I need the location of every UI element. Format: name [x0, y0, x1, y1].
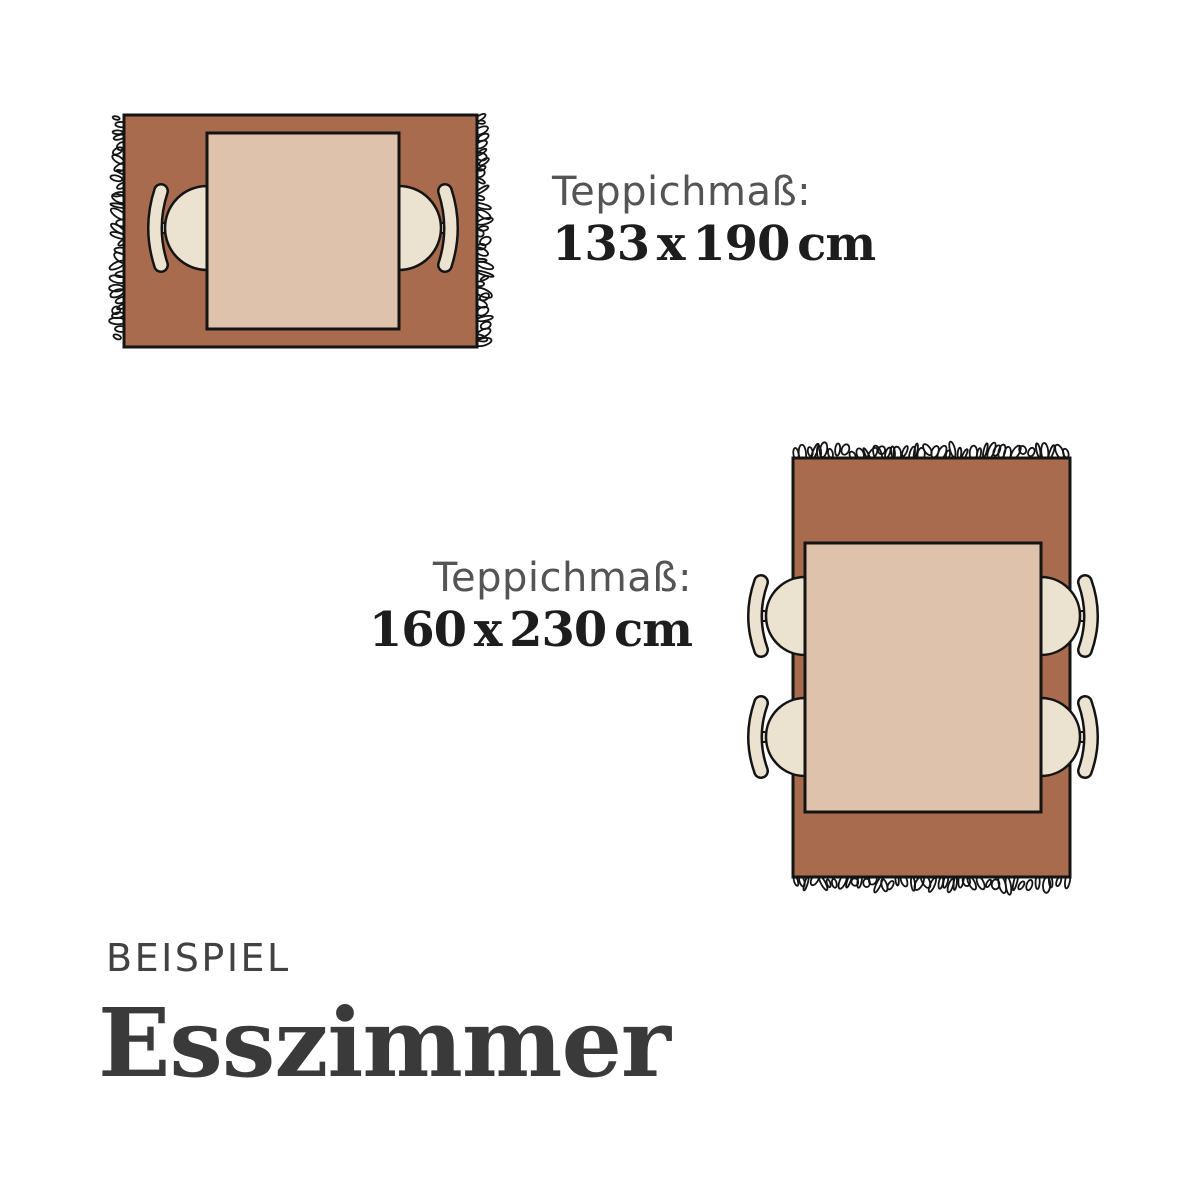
dining-table: [207, 133, 399, 329]
rug-size-value: 160 x 230 cm: [369, 604, 692, 656]
chair-left-top: [755, 577, 805, 655]
canvas: { "colors": { "rug": "#a96b4d", "table":…: [0, 0, 1200, 1200]
fringe-strand: [476, 260, 494, 271]
example-eyebrow: BEISPIEL: [106, 936, 291, 980]
rug-size-label: Teppichmaß:: [552, 170, 875, 214]
measure-block-160x230: Teppichmaß: 160 x 230 cm: [300, 556, 692, 656]
fringe-strand: [110, 174, 123, 182]
fringe-strand: [819, 442, 829, 458]
chair-backrest: [1085, 703, 1091, 771]
chair-seat: [1041, 698, 1080, 776]
rug-diagram-160x230: [720, 420, 1120, 920]
chair-left-bottom: [755, 698, 805, 776]
chair-right: [399, 186, 451, 270]
fringe-strand: [113, 130, 123, 134]
chair-right-top: [1041, 577, 1091, 655]
chair-seat: [766, 577, 805, 655]
chair-backrest: [755, 582, 761, 650]
fringe-strand: [1027, 447, 1036, 457]
page-title: Esszimmer: [98, 992, 670, 1097]
chair-seat: [766, 698, 805, 776]
chair-seat: [1041, 577, 1080, 655]
chair-backrest: [755, 703, 761, 771]
fringe-strand: [476, 216, 493, 226]
rug-size-value: 133 x 190 cm: [552, 218, 875, 270]
chair-backrest: [1085, 582, 1091, 650]
fringe-strand: [1017, 880, 1026, 890]
dining-table: [805, 543, 1041, 812]
fringe-strand: [480, 275, 489, 281]
chair-backrest: [155, 191, 161, 265]
fringe-strand: [112, 116, 120, 121]
fringe-strand: [901, 445, 909, 457]
chair-left: [155, 186, 207, 270]
fringe-strand: [1025, 879, 1034, 891]
fringe-strand: [831, 879, 837, 889]
measure-block-133x190: Teppichmaß: 133 x 190 cm: [552, 170, 875, 270]
rug-size-label: Teppichmaß:: [433, 556, 692, 600]
fringe-strand: [835, 443, 841, 456]
fringe-strand: [478, 120, 485, 124]
fringe-strand: [886, 880, 895, 890]
rug-diagram-133x190: [100, 90, 500, 370]
fringe-strand: [113, 333, 122, 340]
chair-right-bottom: [1041, 698, 1091, 776]
chair-backrest: [445, 191, 451, 265]
